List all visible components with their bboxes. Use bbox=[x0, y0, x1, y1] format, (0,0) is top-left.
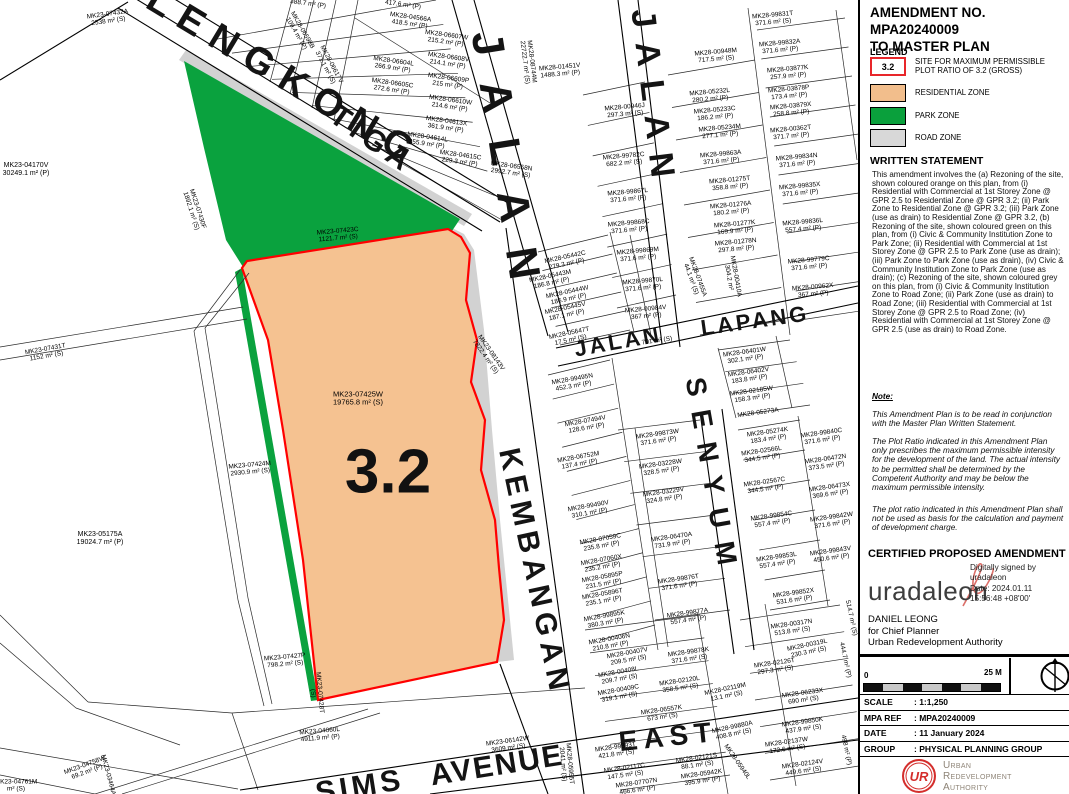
lot-label: MK23-04761Mm² (S) bbox=[0, 779, 37, 794]
mpa-ref-label: MPA REF bbox=[860, 713, 914, 723]
lot-label: MK28-07455A44.1 m² (S) bbox=[680, 256, 708, 300]
signer-block: DANIEL LEONG for Chief Planner Urban Red… bbox=[868, 614, 1003, 649]
lot-label: MK28-04613X361.9 m² (P) bbox=[424, 115, 467, 135]
signer-name: DANIEL LEONG bbox=[868, 614, 938, 625]
lot-label: MK28-06473X369.6 m² (P) bbox=[808, 481, 851, 501]
lot-label: 417.6 m² (P) bbox=[385, 0, 422, 11]
note-heading: Note: bbox=[872, 392, 893, 401]
written-statement-heading: WRITTEN STATEMENT bbox=[870, 155, 983, 167]
lot-label: MK28-05233C186.2 m² (P) bbox=[693, 105, 736, 123]
lot-label: MK23-07423C1121.7 m² (S) bbox=[316, 226, 359, 244]
lot-label: MK28-06233X690 m² (S) bbox=[781, 687, 824, 707]
mpa-ref-value: : MPA20240009 bbox=[914, 713, 1069, 723]
lot-label: MK28-03879X258.8 m² (P) bbox=[770, 101, 813, 119]
lot-label: MK28-99840C371.6 m² (P) bbox=[800, 427, 844, 447]
lot-label: MK23-07427P798.2 m² (S) bbox=[264, 652, 307, 670]
lot-label: MK23-07430F1892.1 m² (S) bbox=[181, 188, 208, 232]
legend-item-site: 3.2 SITE FOR MAXIMUM PERMISSIBLE PLOT RA… bbox=[870, 57, 1065, 76]
lot-label: MK28-06401W302.1 m² (P) bbox=[723, 346, 768, 366]
lot-label: MK28-99893T421.8 m² (S) bbox=[595, 741, 638, 761]
lot-label: MK28-99852X531.6 m² (P) bbox=[772, 587, 815, 607]
lot-label: 514.7 m² (S) bbox=[844, 600, 859, 637]
lot-label: MK28-00962X367 m² (P) bbox=[792, 282, 835, 300]
lot-label: MK28-02566L344.5 m² (P) bbox=[741, 445, 783, 465]
lot-label: MK23-07425W19765.8 m² (S) bbox=[333, 391, 383, 408]
scale-compass-divider bbox=[1009, 658, 1011, 694]
road-zone-label: ROAD ZONE bbox=[915, 134, 1065, 143]
lot-label: MK28-99854C557.4 m² (P) bbox=[750, 510, 794, 530]
scale-bar bbox=[863, 683, 1001, 692]
lot-label: MK28-05942K395.9 m² (P) bbox=[680, 768, 723, 788]
digital-signature-details: Digitally signed by uradaleon Date: 2024… bbox=[970, 563, 1066, 604]
lot-label: MK28-06605C272.6 m² (P) bbox=[370, 77, 414, 97]
amendment-plan-map: 3.2 LENGKONGTIGAJALANJALANKEMBANGANJALAN… bbox=[0, 0, 860, 794]
lot-label: MK23-07424M2930.9 m² (S) bbox=[228, 460, 272, 478]
lot-label: MK28-99779C371.6 m² (P) bbox=[787, 255, 830, 273]
lot-label: 498 m² (P) bbox=[839, 734, 852, 766]
note-paragraph-1: This Amendment Plan is to be read in con… bbox=[872, 410, 1064, 428]
lot-label: MK28-01275T358.8 m² (P) bbox=[709, 175, 751, 193]
written-statement-body: This amendment involves the (a) Rezoning… bbox=[872, 171, 1066, 334]
plot-ratio-label: 3.2 bbox=[345, 437, 431, 508]
lot-label: MK28-08744M22722.7 m² (S) bbox=[518, 40, 538, 85]
scale-value: : 1:1,250 bbox=[914, 697, 1069, 707]
table-row-date: DATE : 11 January 2024 bbox=[860, 725, 1069, 741]
residential-zone-swatch bbox=[870, 84, 906, 102]
north-compass-icon bbox=[1038, 658, 1069, 692]
lot-label: MK28-06472N373.5 m² (P) bbox=[804, 453, 848, 473]
table-row-mpa-ref: MPA REF : MPA20240009 bbox=[860, 710, 1069, 726]
lot-label: 444.7 m² (P) bbox=[838, 642, 853, 679]
lot-label: MK28-02120L358.5 m² (S) bbox=[659, 675, 701, 695]
lot-label: MK23-04170V30249.1 m² (P) bbox=[3, 162, 50, 178]
lot-label: MK28-01276A180.2 m² (P) bbox=[710, 200, 753, 218]
street-label-senyum: SENYUM bbox=[679, 375, 746, 581]
signer-org: Urban Redevelopment Authority bbox=[868, 637, 1003, 648]
lot-label: MK28-05274K183.4 m² (P) bbox=[746, 426, 789, 446]
lot-label: MK28-99850K437.9 m² (S) bbox=[781, 716, 824, 736]
lot-label: MK28-06604L266.9 m² (P) bbox=[372, 55, 414, 75]
ura-logo-icon: UR bbox=[902, 759, 936, 793]
lot-label: MK28-99782C682.2 m² (S) bbox=[602, 151, 645, 169]
map-label-layer: 3.2 LENGKONGTIGAJALANJALANKEMBANGANJALAN… bbox=[0, 0, 858, 794]
lot-label: MK28-03877K257.9 m² (P) bbox=[767, 64, 810, 82]
lot-label: MK28-99831T371.6 m² (S) bbox=[752, 10, 794, 28]
lot-label: MK28-99876T371.6 m² (P) bbox=[658, 573, 701, 593]
lot-label: MK28-01277K169.9 m² (P) bbox=[714, 219, 757, 237]
lot-label: MK28-99878K371.6 m² (S) bbox=[667, 646, 710, 666]
lot-label: MK28-05940L bbox=[722, 743, 751, 781]
lot-label: MK28-99895K380.3 m² (P) bbox=[583, 609, 626, 631]
lot-label: MK28-06609P215 m² (P) bbox=[426, 72, 469, 92]
lot-label: MK28-06402V183.8 m² (P) bbox=[727, 366, 770, 386]
park-zone-label: PARK ZONE bbox=[915, 112, 1065, 121]
residential-zone-label: RESIDENTIAL ZONE bbox=[915, 89, 1065, 98]
lot-label: MK28-00362T371.7 m² (P) bbox=[770, 124, 812, 142]
scale-label: SCALE bbox=[860, 697, 914, 707]
lot-label: MK28-99877A557.4 m² (P) bbox=[666, 607, 709, 627]
lot-label: MK28-99853L557.4 m² (P) bbox=[756, 551, 798, 571]
lot-label: MK28-01451V1488.3 m² (P) bbox=[539, 62, 582, 80]
lot-label: MK28-06752M137.4 m² (P) bbox=[557, 450, 602, 472]
lot-label: MK28-02137W172.6 m² (S) bbox=[765, 736, 810, 756]
lot-label: MK28-05234M277.1 m² (P) bbox=[698, 123, 742, 141]
lot-label: 388.7 m² (P) bbox=[290, 0, 327, 10]
legend-site-label: SITE FOR MAXIMUM PERMISSIBLE PLOT RATIO … bbox=[915, 58, 1065, 76]
site-ratio-symbol: 3.2 bbox=[870, 57, 906, 76]
plan-info-panel: AMENDMENT NO. MPA20240009 TO MASTER PLAN… bbox=[860, 0, 1069, 794]
lot-label: MK28-99869M371.6 m² (P) bbox=[616, 246, 660, 264]
lot-label: MK28-06607W215.2 m² (P) bbox=[424, 29, 469, 49]
lot-label: MK28-05273A bbox=[737, 407, 779, 420]
legend-item-residential: RESIDENTIAL ZONE bbox=[870, 84, 1065, 102]
lot-label: MK28-01278N297.8 m² (P) bbox=[714, 237, 757, 255]
lot-label: MK28-99867L371.6 m² (P) bbox=[607, 187, 649, 205]
lot-label: MK28-99836L557.4 m² (P) bbox=[782, 217, 824, 235]
title-line1: AMENDMENT NO. MPA20240009 bbox=[870, 5, 986, 37]
lot-label: MK28-05232L280.2 m² (P) bbox=[689, 87, 731, 105]
panel-divider bbox=[860, 654, 1069, 657]
lot-label: MK28-99490V310.1 m² (P) bbox=[567, 499, 610, 521]
lot-label: MK28-00984V367 m² (P) bbox=[625, 304, 668, 322]
group-label: GROUP bbox=[860, 744, 914, 754]
lot-label: MK28-06598B109.4 m² (P) bbox=[282, 10, 315, 53]
table-row-scale: SCALE : 1:1,250 bbox=[860, 694, 1069, 710]
lot-label: MK23-05175A19024.7 m² (P) bbox=[77, 531, 124, 547]
street-label-sims: SIMS bbox=[313, 763, 407, 794]
legend-item-road: ROAD ZONE bbox=[870, 129, 1065, 147]
lot-label: MK28-04615C229.3 m² (P) bbox=[438, 149, 482, 169]
scale-bar-max: 25 M bbox=[984, 668, 1002, 677]
park-zone-swatch bbox=[870, 107, 906, 125]
plan-reference-table: SCALE : 1:1,250 MPA REF : MPA20240009 DA… bbox=[860, 694, 1069, 757]
group-value: : PHYSICAL PLANNING GROUP bbox=[914, 744, 1069, 754]
lot-label: MK28-00409C319.1 m² (S) bbox=[597, 683, 641, 705]
lot-label: MK23-04060L4911.9 m² (P) bbox=[299, 726, 341, 744]
street-label-lapang: LAPANG bbox=[699, 301, 811, 342]
legend-item-park: PARK ZONE bbox=[870, 107, 1065, 125]
lot-label: MK28-07494V128.6 m² (P) bbox=[564, 414, 607, 436]
lot-label: MK28-02185W158.3 m² (P) bbox=[730, 385, 775, 405]
lot-label: MK23-07431T1152 m² (S) bbox=[24, 342, 67, 363]
lot-label: MK28-06470A731.9 m² (P) bbox=[650, 531, 693, 551]
lot-label: MK28-05955T2041 m² (S) bbox=[557, 743, 575, 785]
table-row-group: GROUP : PHYSICAL PLANNING GROUP bbox=[860, 741, 1069, 757]
lot-label: MK28-02126T297.3 m² (S) bbox=[754, 657, 797, 677]
lot-label: MK28-00948M717.5 m² (S) bbox=[694, 47, 738, 65]
lot-label: MK28-03228W328.5 m² (P) bbox=[639, 458, 684, 478]
lot-label: MK28-02119M13.1 m² (S) bbox=[704, 682, 748, 705]
lot-label: MK28-99880A408.8 m² (S) bbox=[711, 720, 755, 743]
lot-label: MK28-99832A371.6 m² (P) bbox=[759, 38, 802, 56]
lot-label: MK23-08143V7822.4 m² (S) bbox=[470, 334, 506, 376]
lot-label: MK28-00410A304.2 m² bbox=[721, 255, 743, 298]
lot-label: MK28-99842W371.6 m² (P) bbox=[810, 511, 855, 531]
lot-label: MK28-99834N371.6 m² (P) bbox=[775, 152, 818, 170]
note-paragraph-3: The plot ratio indicated in this Amendme… bbox=[872, 505, 1064, 533]
lot-label: MK28-99870L371.6 m² (P) bbox=[622, 276, 664, 294]
lot-label: MK28-99863A371.6 m² (P) bbox=[700, 149, 743, 167]
lot-label: MK28-03878P173.4 m² (P) bbox=[768, 84, 811, 102]
date-value: : 11 January 2024 bbox=[914, 728, 1069, 738]
lot-label: MK28-02567C344.5 m² (P) bbox=[743, 476, 787, 496]
lot-label: MK28-06610W214.6 m² (P) bbox=[428, 94, 473, 114]
lot-label: MK23-07432A2538 m² (S) bbox=[86, 8, 129, 28]
lot-label: MK28-03229V324.8 m² (P) bbox=[642, 486, 685, 506]
ura-logo: UR Urban Redevelopment Authority bbox=[902, 759, 1012, 793]
street-label-kembangan: KEMBANGAN bbox=[491, 445, 577, 699]
lot-label: MK28-99835X371.6 m² (P) bbox=[779, 181, 822, 199]
lot-label: MK28-99868C371.6 m² (P) bbox=[607, 218, 650, 236]
lot-label: MK28-99873W371.6 m² (P) bbox=[636, 428, 681, 448]
lot-label: MK23-07428T(S) bbox=[307, 672, 325, 714]
lot-label: MK23-03464A bbox=[99, 754, 117, 794]
lot-label: MK28-02124V449.6 m² (S) bbox=[781, 758, 824, 778]
signer-title: for Chief Planner bbox=[868, 626, 939, 637]
road-zone-swatch bbox=[870, 129, 906, 147]
legend-heading: LEGEND bbox=[870, 47, 908, 57]
scale-bar-zero: 0 bbox=[864, 671, 868, 680]
lot-label: MK28-99495N452.3 m² (P) bbox=[551, 372, 595, 394]
ura-logo-text: Urban Redevelopment Authority bbox=[943, 760, 1012, 793]
lot-label: MK28-07059C235.8 m² (P) bbox=[579, 532, 623, 554]
date-label: DATE bbox=[860, 728, 914, 738]
lot-label: MK28-00317N513.8 m² (S) bbox=[770, 618, 814, 638]
lot-label: MK28-99843V450.6 m² (P) bbox=[809, 545, 852, 565]
note-paragraph-2: The Plot Ratio indicated in this Amendme… bbox=[872, 437, 1064, 492]
